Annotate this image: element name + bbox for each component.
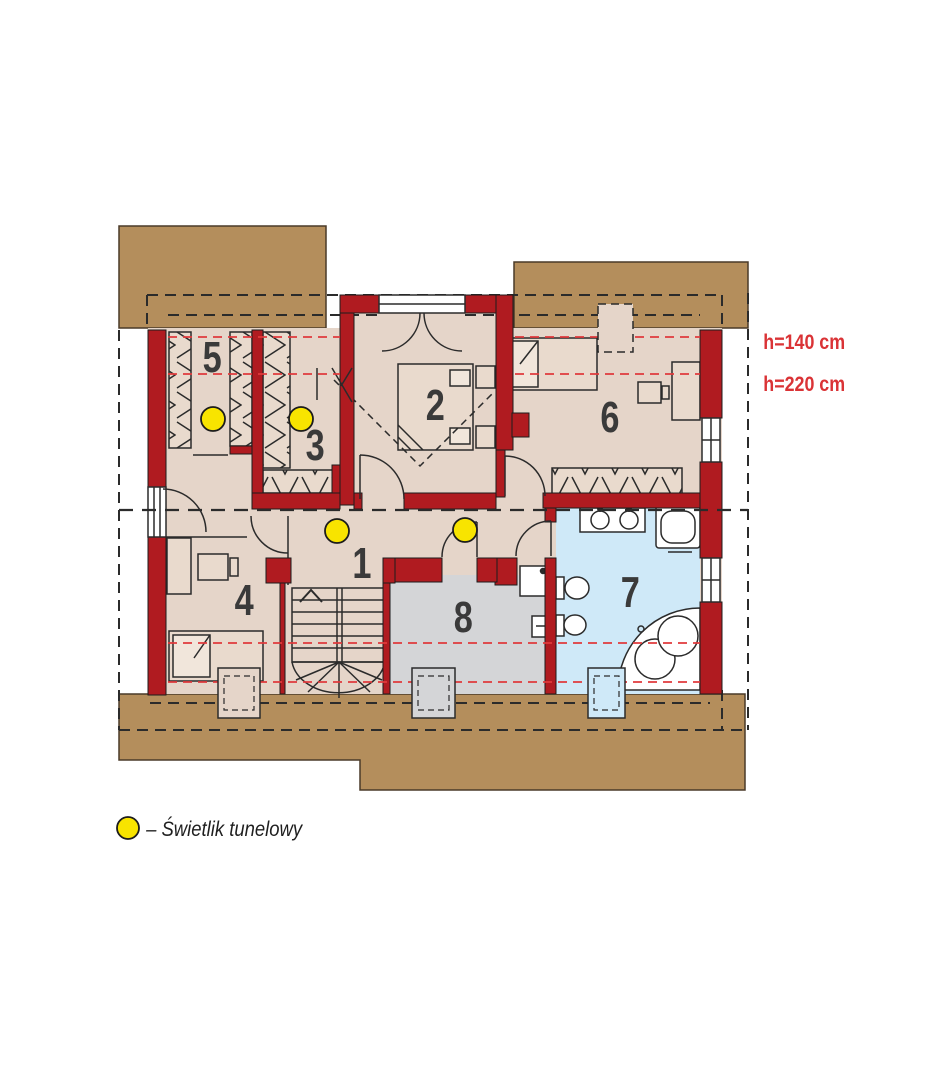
wall-hall-north-b [404, 493, 496, 509]
pillow [450, 428, 470, 444]
desk [198, 554, 228, 580]
wall-room2-north-left [340, 295, 379, 313]
desk [672, 362, 700, 420]
room-label-4: 4 [235, 576, 254, 625]
wall-room8-north-b [477, 558, 497, 582]
room-label-7: 7 [621, 568, 640, 617]
bidet-tank [556, 615, 564, 636]
bathtub-lobe [658, 616, 698, 656]
room-label-2: 2 [426, 381, 445, 430]
wardrobe-hatch [263, 470, 333, 493]
wall-room3-stub [332, 465, 340, 493]
shower [656, 506, 700, 548]
floor-plan-drawing: 1 2 3 4 5 6 7 8 h=140 cm h=220 cm – Świe… [0, 0, 950, 1067]
room-label-6: 6 [600, 393, 619, 442]
wall-room3-south [252, 493, 340, 509]
wardrobe-hatch [552, 468, 682, 496]
wall-pier [512, 413, 529, 437]
wardrobe-hatch [169, 332, 191, 448]
chair-back [230, 558, 238, 576]
wall-room2-east-narrow [496, 450, 505, 497]
toilet-bowl [565, 577, 589, 599]
skylight-icon [325, 519, 349, 543]
legend: – Świetlik tunelowy [117, 816, 303, 841]
roof-top-left [119, 226, 326, 328]
legend-skylight-icon [117, 817, 139, 839]
chair-back [662, 386, 669, 399]
wall-bath-north [543, 493, 702, 508]
wall-left-lower [148, 537, 166, 695]
wall-room8-west [383, 583, 390, 694]
wall-hall-north-a [354, 493, 362, 509]
wardrobe-hatch [263, 332, 290, 468]
wall-room8-west-top [383, 558, 395, 583]
skylight-icon [453, 518, 477, 542]
wardrobe-hatch [230, 332, 252, 446]
height-annotations: h=140 cm h=220 cm [763, 331, 845, 397]
legend-label: – Świetlik tunelowy [145, 816, 303, 841]
toilet-tank [556, 577, 564, 599]
cabinet [167, 538, 191, 594]
pillow [450, 370, 470, 386]
wall-stair-pier [266, 558, 291, 583]
floor-plan-page: 1 2 3 4 5 6 7 8 h=140 cm h=220 cm – Świe… [0, 0, 950, 1067]
sink [591, 511, 609, 529]
room-label-3: 3 [306, 421, 325, 470]
wall-room2-east [496, 295, 513, 450]
room-label-1: 1 [352, 539, 371, 588]
wall-closet-divider [252, 330, 263, 503]
skylight-icon [201, 407, 225, 431]
wall-room2-west [340, 295, 354, 505]
wall-east-a [700, 330, 722, 418]
wall-pier-vestibule [495, 558, 517, 585]
dormer-room6 [598, 304, 633, 352]
window-left [148, 487, 166, 537]
wall-left-upper [148, 330, 166, 487]
wall-closet-foot [230, 446, 252, 454]
sink [620, 511, 638, 529]
height-annotation-140: h=140 cm [763, 331, 845, 355]
height-annotation-220: h=220 cm [763, 373, 845, 397]
wall-stair-side [280, 583, 285, 694]
room-label-8: 8 [454, 593, 473, 642]
wall-east-c [700, 602, 722, 694]
wall-bath-west-lower [545, 558, 556, 694]
nightstand [476, 366, 495, 388]
pillow [173, 635, 210, 677]
nightstand [476, 426, 495, 448]
bidet-bowl [564, 615, 586, 635]
chair [638, 382, 661, 403]
room-label-5: 5 [203, 333, 222, 382]
